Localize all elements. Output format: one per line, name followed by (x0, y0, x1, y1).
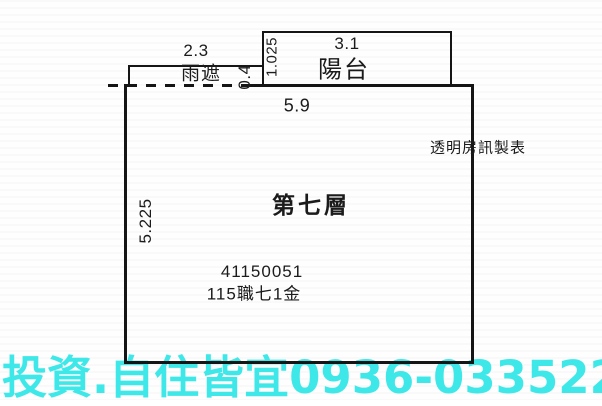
dim-main-width: 5.9 (284, 96, 311, 117)
dim-main-depth: 5.225 (136, 198, 156, 243)
scanned-floorplan-page: 投資.自住皆宜0936-033522 2.3 雨遮 0.4 1.025 3.1 … (0, 0, 602, 400)
dim-balcony-depth: 1.025 (264, 37, 281, 77)
dim-rain-cover-depth: 0.4 (235, 64, 255, 89)
floorplan-diagram: 2.3 雨遮 0.4 1.025 3.1 陽台 5.9 5.225 第七層 41… (0, 0, 602, 400)
floor-label: 第七層 (272, 186, 350, 220)
registration-reference: 115職七1金 (207, 280, 302, 305)
balcony-label: 陽台 (318, 50, 370, 85)
rain-cover-label: 雨遮 (181, 59, 221, 86)
producer-credit: 透明房訊製表 (430, 137, 526, 158)
main-room-outline (124, 84, 474, 364)
